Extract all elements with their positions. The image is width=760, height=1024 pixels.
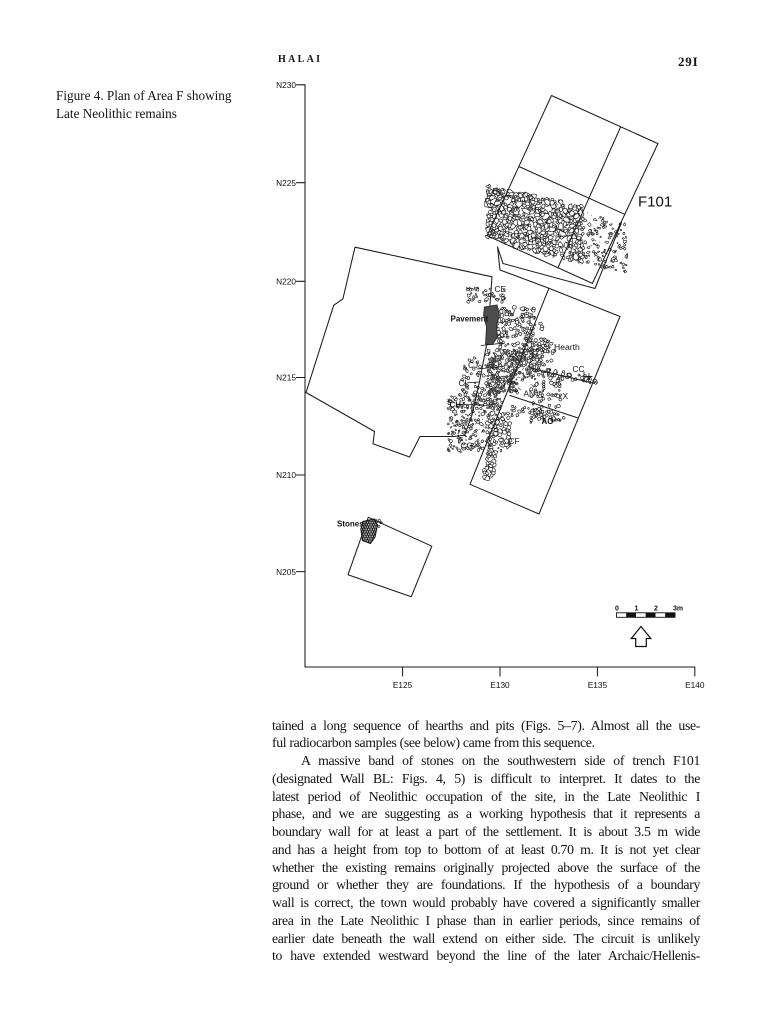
- svg-text:E130: E130: [490, 680, 510, 690]
- svg-text:BV: BV: [504, 308, 516, 318]
- svg-text:N210: N210: [276, 470, 296, 480]
- svg-text:CI: CI: [459, 378, 467, 388]
- svg-text:2: 2: [654, 606, 658, 613]
- svg-text:0: 0: [615, 606, 619, 613]
- svg-text:N205: N205: [276, 567, 296, 577]
- svg-text:N220: N220: [276, 277, 296, 287]
- svg-text:T: T: [528, 316, 533, 326]
- svg-text:E135: E135: [588, 680, 608, 690]
- svg-text:E125: E125: [393, 680, 413, 690]
- svg-text:AN: AN: [524, 389, 536, 399]
- svg-text:N230: N230: [276, 80, 296, 90]
- svg-text:N215: N215: [276, 373, 296, 383]
- svg-text:Stones: Stones: [337, 520, 364, 529]
- svg-text:CH: CH: [450, 401, 462, 410]
- svg-text:CG: CG: [461, 441, 473, 451]
- svg-text:3m: 3m: [673, 606, 683, 613]
- svg-text:CF: CF: [509, 436, 520, 446]
- svg-text:1: 1: [634, 606, 638, 613]
- svg-text:AO: AO: [542, 417, 554, 426]
- svg-text:E140: E140: [685, 680, 705, 690]
- svg-text:N225: N225: [276, 178, 296, 188]
- svg-text:CJ: CJ: [468, 360, 478, 370]
- svg-text:Pavement: Pavement: [451, 315, 489, 324]
- svg-text:CC: CC: [573, 364, 585, 374]
- svg-text:F101: F101: [638, 194, 672, 211]
- svg-text:CE: CE: [495, 284, 507, 294]
- svg-text:Hearth: Hearth: [554, 342, 580, 352]
- svg-text:BL: BL: [493, 186, 504, 196]
- svg-text:X: X: [563, 391, 569, 401]
